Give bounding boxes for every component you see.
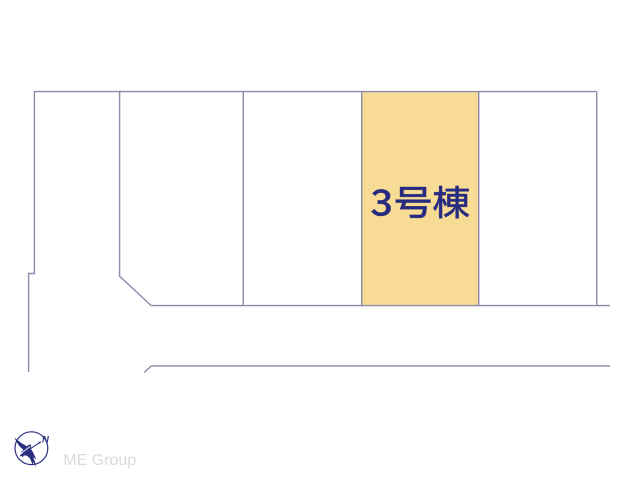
svg-text:ME Group: ME Group: [63, 452, 136, 469]
svg-text:N: N: [42, 435, 50, 446]
